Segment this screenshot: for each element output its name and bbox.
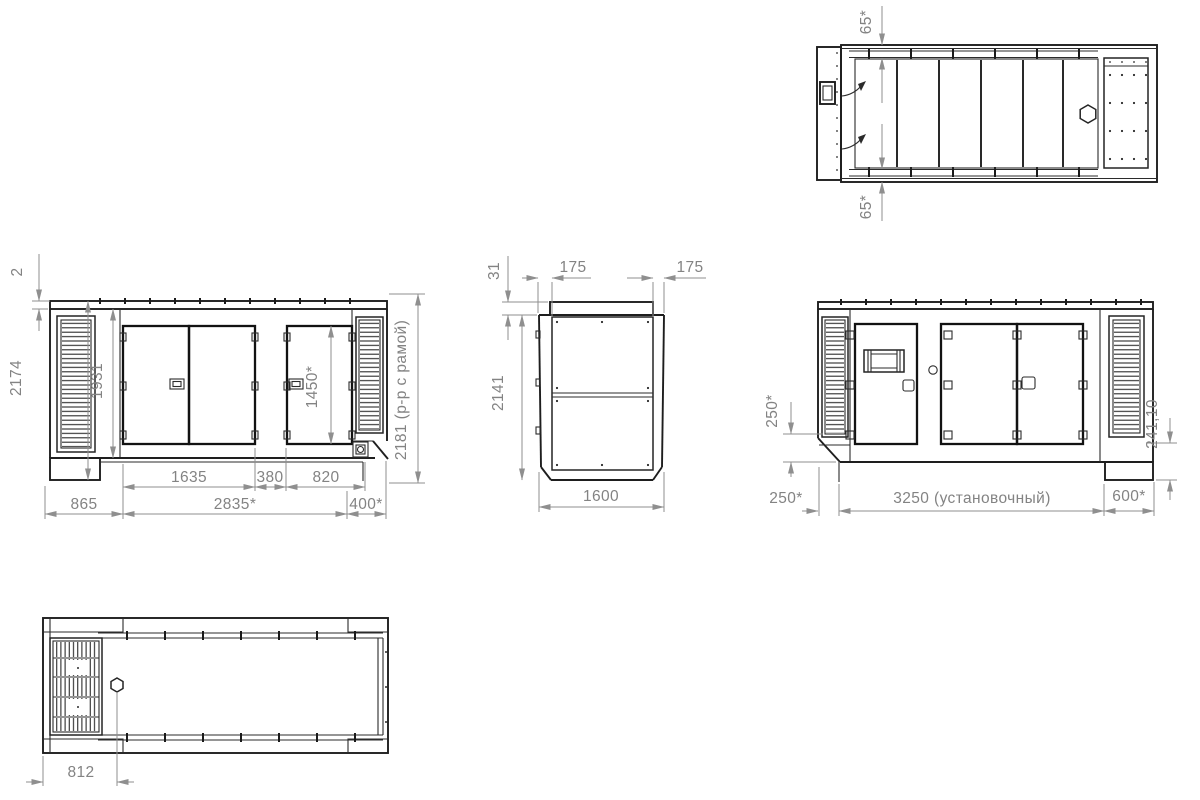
dim-label-right-offset: 600*: [1112, 488, 1146, 505]
dim-label-body-height: 1931: [89, 363, 106, 399]
door-exhaust: [855, 324, 917, 444]
dim-label-base-corner: 241,10: [1144, 399, 1161, 449]
corner-chamfer: [818, 438, 840, 462]
dim-label-mid-panel-width: 380: [256, 469, 283, 486]
roof-cap: [550, 302, 653, 315]
louver-grille-left: [822, 317, 848, 437]
hex-filler-plug-icon: [1080, 105, 1096, 123]
view-front: 2 2174 1931 1450* 2181 (р-р с рамой): [8, 254, 425, 519]
dim-label-left-module-length: 865: [70, 496, 97, 513]
door-left-2: [189, 326, 255, 444]
dimension-end-width: 1600: [539, 472, 664, 512]
dimension-front-frame-height: 2181 (р-р с рамой): [389, 294, 425, 483]
door-handle: [170, 379, 184, 389]
dim-label-side-offset-left: 175: [559, 259, 586, 276]
dim-label-side-offset-right: 175: [676, 259, 703, 276]
door-handle: [289, 379, 303, 389]
door-left-1: [123, 326, 189, 444]
corner-bracket: [43, 739, 123, 753]
corner-bracket: [348, 618, 388, 632]
top-roof-body: [841, 45, 1157, 182]
lifting-hook: [842, 134, 866, 149]
view-bottom: 812: [26, 618, 388, 786]
dimension-end-height: 2141: [490, 315, 522, 480]
dimension-front-body-height: 1931: [89, 309, 113, 458]
generator-enclosure-drawing: 65* 65*: [0, 0, 1200, 800]
door-right: [1017, 324, 1083, 444]
corner-chamfer: [373, 441, 388, 459]
view-end: 31 175 175 2141 1600: [486, 256, 706, 512]
rear-body: [818, 299, 1153, 482]
lifting-hook: [842, 81, 866, 96]
hex-drain-plug-icon: [111, 678, 123, 692]
dim-label-roof-lip: 2: [9, 267, 26, 276]
dim-label-body-length: 2835*: [214, 496, 257, 513]
dim-label-frame-height: 2181 (р-р с рамой): [393, 320, 410, 460]
rivet-dots-column: [836, 52, 838, 171]
rail-ticks-bottom: [127, 733, 355, 742]
top-left-end-cap: [817, 47, 841, 180]
drawing-sheet: 65* 65*: [0, 0, 1200, 800]
roof-panel-seams: [897, 60, 1063, 167]
dim-label-overall-height: 2174: [8, 360, 25, 396]
door-hinges: [846, 331, 1087, 439]
dim-label-top-edge-bottom: 65*: [858, 195, 875, 219]
exhaust-hatch: [820, 82, 835, 104]
dim-label-top-edge-top: 65*: [858, 10, 875, 34]
dimension-rear-base-corner: 241,10: [1144, 399, 1177, 500]
view-rear: 250* 241,10 250* 3250 (установочный) 600…: [764, 299, 1177, 516]
dim-label-double-door-width: 1635: [171, 469, 207, 486]
rear-doors: [846, 324, 1087, 444]
dimension-front-roof-lip: 2: [9, 254, 50, 331]
latch-circle: [929, 366, 937, 374]
door-handle: [1022, 377, 1035, 389]
louver-grille-right: [356, 317, 383, 433]
frame-skid-left: [50, 458, 100, 480]
dim-label-left-offset: 250*: [769, 490, 803, 507]
dim-label-mounting-length: 3250 (установочный): [893, 490, 1051, 507]
dimension-rear-bottom-row: 250* 3250 (установочный) 600*: [769, 467, 1154, 516]
dim-label-door-height: 1450*: [304, 366, 321, 409]
dim-label-end-width: 1600: [583, 488, 619, 505]
end-body: [536, 302, 664, 480]
rail-ticks-top: [127, 631, 355, 640]
door-handle: [903, 380, 914, 391]
dimension-front-door-height: 1450*: [304, 326, 331, 444]
dim-label-end-height: 2141: [490, 375, 507, 411]
dim-label-roof-cap-height: 31: [486, 262, 503, 280]
dim-label-corner-cut-height: 250*: [764, 394, 781, 428]
louver-grille-right: [1109, 316, 1144, 437]
power-socket-box: [353, 442, 368, 457]
exhaust-vent: [864, 350, 904, 372]
riveted-roof-panel: [1104, 58, 1148, 168]
bottom-vent-grille: [50, 638, 102, 735]
view-top: 65* 65*: [817, 6, 1157, 221]
dim-label-right-module-length: 400*: [349, 496, 383, 513]
dim-label-drain-offset: 812: [67, 764, 94, 781]
roof-slab: [818, 302, 1153, 309]
dim-label-right-door-width: 820: [312, 469, 339, 486]
corner-bracket: [43, 618, 123, 632]
frame-skid-right: [1105, 462, 1153, 480]
